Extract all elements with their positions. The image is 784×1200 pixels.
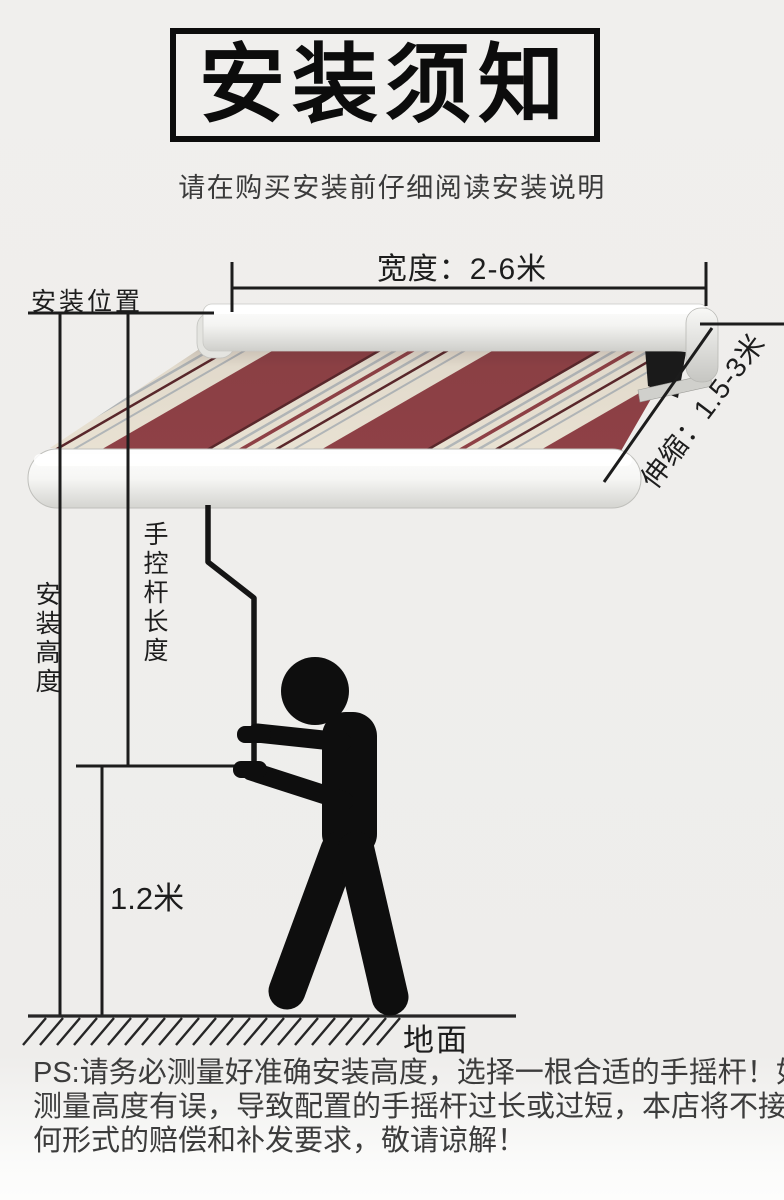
ground-label: 地面 bbox=[403, 1015, 469, 1060]
page-root: 安装须知 请在购买安装前仔细阅读安装说明 bbox=[0, 0, 784, 1200]
awning-diagram bbox=[0, 0, 784, 1200]
ps-disclaimer: PS:请务必测量好准确安装高度，选择一根合适的手摇杆！如果 测量高度有误，导致配… bbox=[33, 1056, 781, 1158]
install-position-label: 安装位置 bbox=[31, 282, 143, 318]
hand-height-label: 1.2米 bbox=[110, 873, 184, 918]
ps-line-1: PS:请务必测量好准确安装高度，选择一根合适的手摇杆！如果 bbox=[33, 1056, 781, 1090]
ps-line-2: 测量高度有误，导致配置的手摇杆过长或过短，本店将不接受任 bbox=[33, 1090, 781, 1124]
install-height-label: 安装高度 bbox=[28, 581, 64, 697]
ps-line-3: 何形式的赔偿和补发要求，敬请谅解！ bbox=[33, 1124, 781, 1158]
width-dimension-label: 宽度：2-6米 bbox=[312, 244, 612, 288]
awning-front-roller bbox=[28, 449, 641, 508]
rod-length-label: 手控杆长度 bbox=[136, 521, 172, 666]
